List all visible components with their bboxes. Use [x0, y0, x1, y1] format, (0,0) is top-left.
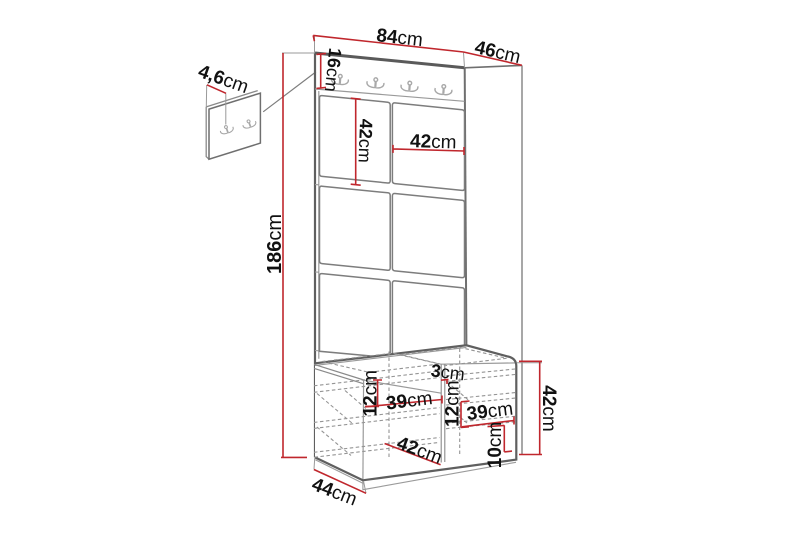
svg-text:42cm: 42cm [355, 118, 377, 163]
svg-text:186cm: 186cm [264, 214, 286, 274]
svg-text:12cm: 12cm [443, 380, 464, 426]
svg-text:42cm: 42cm [538, 385, 559, 431]
svg-text:42cm: 42cm [410, 131, 457, 153]
svg-text:10cm: 10cm [485, 422, 506, 468]
svg-text:12cm: 12cm [360, 370, 381, 416]
